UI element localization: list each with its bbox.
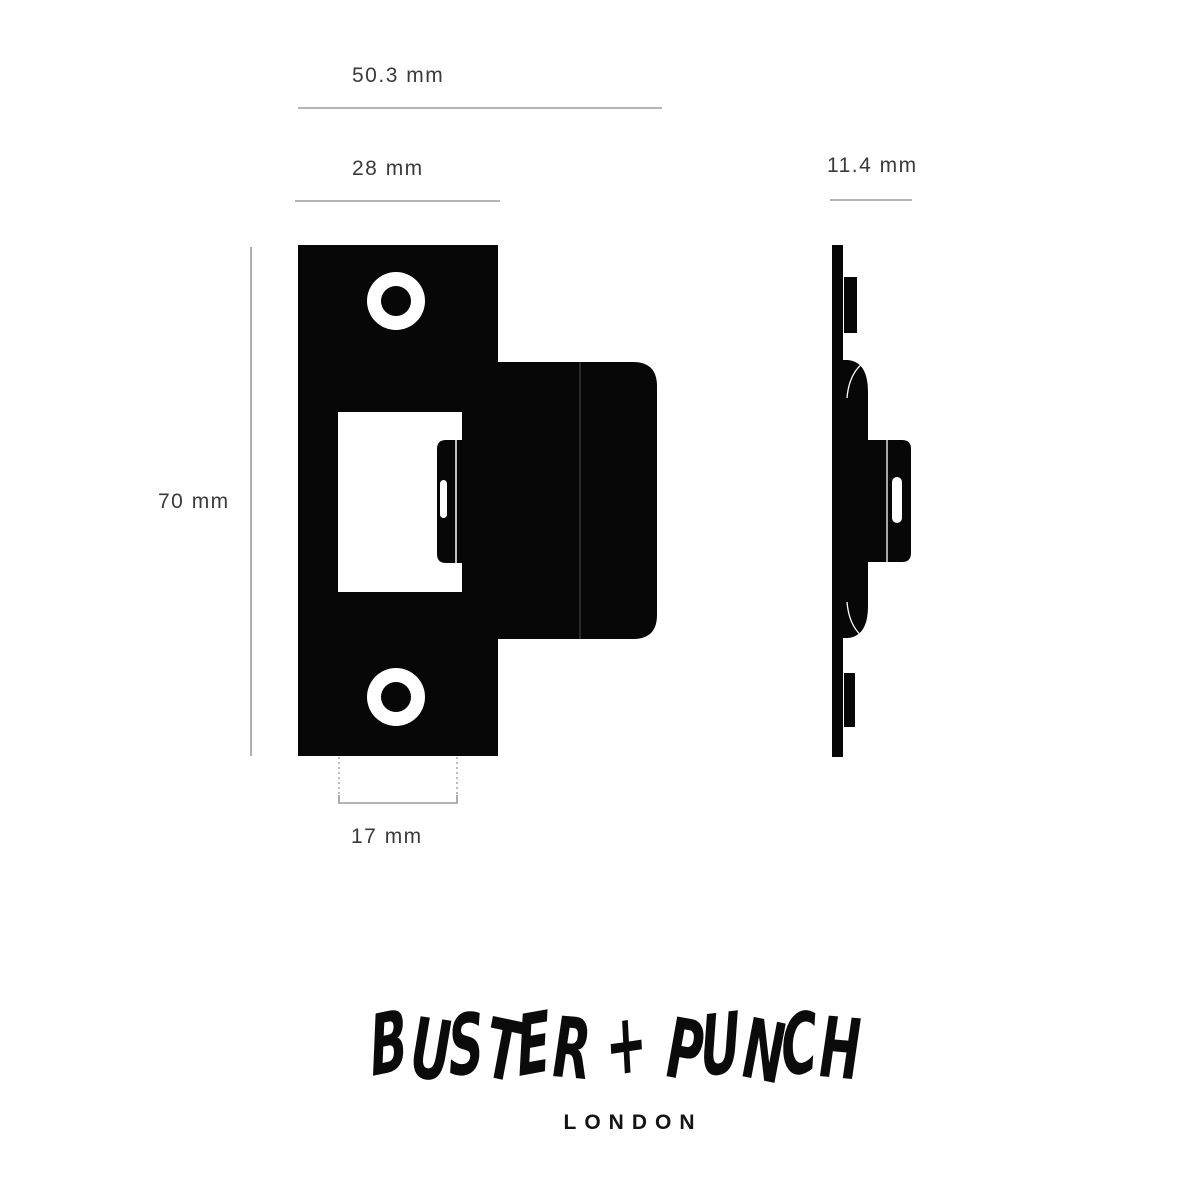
dim-label-overall-width: 50.3 mm — [352, 64, 444, 87]
side-bottom-tab — [844, 673, 855, 727]
screw-hole-top — [367, 272, 425, 330]
screw-hole-bottom-center — [381, 682, 411, 712]
screw-hole-top-center — [381, 286, 411, 316]
side-faceplate — [832, 245, 843, 757]
front-view — [298, 245, 657, 756]
latch-case — [498, 362, 657, 639]
side-view — [832, 245, 911, 757]
dim-label-faceplate-width: 28 mm — [352, 157, 424, 180]
side-bolt-slot — [892, 477, 902, 523]
side-top-tab — [844, 277, 857, 333]
screw-hole-bottom — [367, 668, 425, 726]
brand-logo: BUSTER + PUNCH LONDON — [362, 994, 864, 1134]
latch-dimension-diagram: 50.3 mm 28 mm 11.4 mm 70 mm 17 mm — [0, 0, 1200, 1200]
dim-label-bolt-width: 17 mm — [351, 825, 423, 848]
side-latch-bolt — [868, 440, 911, 562]
bolt-slot — [440, 480, 447, 518]
latch-dimension-diagram-page: 50.3 mm 28 mm 11.4 mm 70 mm 17 mm — [0, 0, 1200, 1200]
side-latch-case — [842, 360, 868, 638]
dim-label-faceplate-height: 70 mm — [158, 490, 230, 513]
brand-wordmark: BUSTER + PUNCH — [362, 994, 864, 1101]
brand-city: LONDON — [564, 1111, 703, 1134]
dim-line-bolt-width — [339, 795, 457, 803]
dim-label-side-depth: 11.4 mm — [827, 154, 918, 177]
